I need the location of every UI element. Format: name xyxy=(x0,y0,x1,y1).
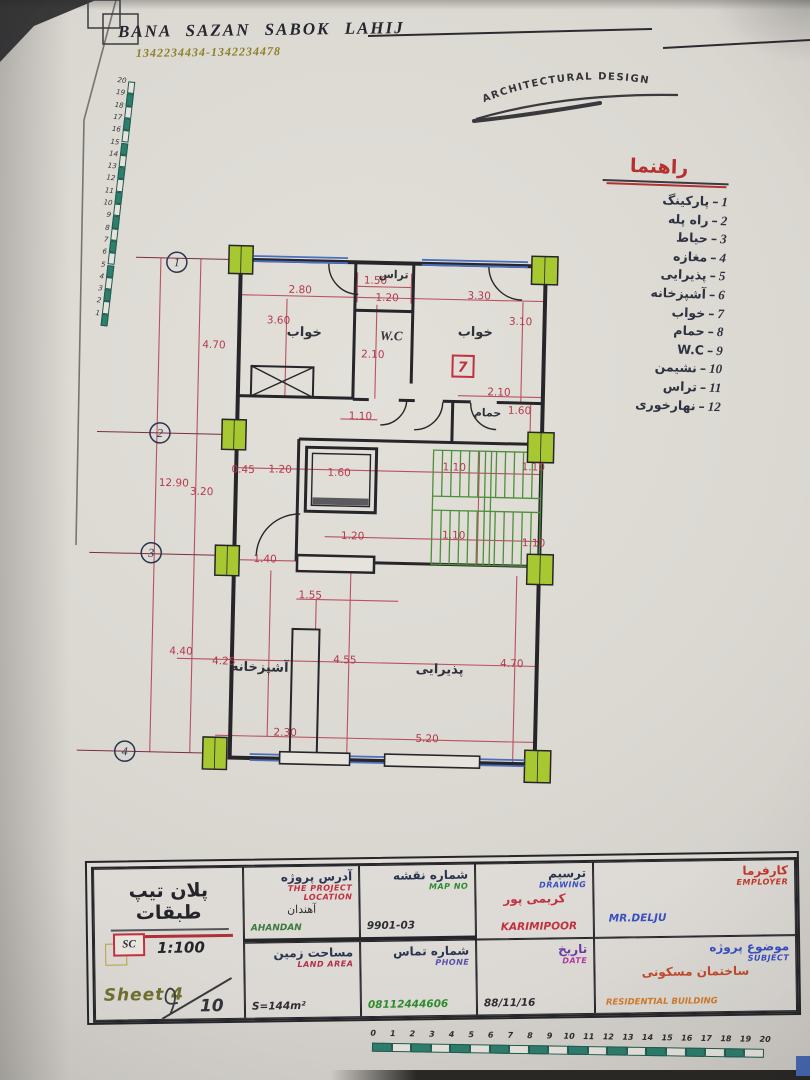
room-label: پذیرایی xyxy=(416,662,464,678)
legend-item-number: 5 xyxy=(719,268,726,284)
plan-type-title: پلان تیپ طبقات xyxy=(100,879,237,925)
blue-corner-mark xyxy=(796,1056,810,1076)
dimension-label: 1.20 xyxy=(268,463,292,476)
dimension-label: 2.10 xyxy=(487,386,511,399)
ruler-segment xyxy=(685,1048,705,1057)
legend-item-label: راه پله xyxy=(668,211,709,227)
title-block: پلان تیپ طبقات SC 1:100 Sheet 4 10 xyxy=(85,851,801,1025)
table-bottom-edge xyxy=(330,1070,810,1080)
dimension-label: 1.60 xyxy=(508,405,532,418)
ruler-segment xyxy=(646,1047,666,1056)
room-label: حمام xyxy=(474,406,502,420)
dimension-label: 4.70 xyxy=(500,658,524,671)
legend-item-number: 12 xyxy=(708,398,722,414)
ruler-segment xyxy=(450,1044,470,1053)
ruler-number: 12 xyxy=(99,173,116,183)
ruler-number: 9 xyxy=(542,1031,556,1040)
scale-value: 1:100 xyxy=(157,938,205,957)
legend-item-label: خواب xyxy=(671,304,705,320)
legend-item-label: آشپزخانه xyxy=(650,285,706,302)
dimension-label: 3.20 xyxy=(190,486,214,499)
ruler-number: 13 xyxy=(621,1033,635,1042)
cell-employer: کارفرما EMPLOYER MR.DELJU xyxy=(593,859,796,938)
grid-bubble-number: 4 xyxy=(122,744,128,758)
legend-item-number: 6 xyxy=(718,287,725,303)
ruler-number: 10 xyxy=(96,197,113,207)
legend-item-number: 3 xyxy=(720,231,727,247)
ruler-number: 16 xyxy=(104,124,121,134)
legend-item-number: 4 xyxy=(719,250,726,266)
legend-item-number: 9 xyxy=(716,343,723,359)
ruler-number: 20 xyxy=(110,75,127,85)
company-phones: 1342234434-1342234478 xyxy=(136,44,281,61)
ruler-segment xyxy=(127,81,135,94)
ruler-segment xyxy=(607,1046,627,1055)
dimension-label: 5.20 xyxy=(415,733,439,746)
grid-bubble-number: 1 xyxy=(174,255,180,269)
ruler-segment xyxy=(529,1045,549,1054)
cell-subject: موضوع پروژه SUBJECT ساختمان مسکونی RESID… xyxy=(594,935,797,1014)
legend-title: راهنما xyxy=(597,154,730,181)
bottom-scale-ruler: 01234567891011121314151617181920 xyxy=(372,1029,796,1066)
ruler-segment xyxy=(627,1047,647,1056)
photographed-blueprint-sheet: BANA SAZAN SABOK LAHIJ 1342234434-134223… xyxy=(0,0,810,1080)
legend-item-label: پذیرایی xyxy=(660,266,707,283)
dimension-label: 3.10 xyxy=(509,316,533,329)
ruler-number: 20 xyxy=(758,1035,772,1044)
ruler-segment xyxy=(744,1049,764,1058)
ruler-segment xyxy=(489,1045,509,1054)
ruler-segment xyxy=(705,1048,725,1057)
dimension-label: 1.10 xyxy=(442,461,466,474)
cell-map-no: شماره نقشه MAP NO 9901-03 xyxy=(359,864,476,942)
ruler-segment xyxy=(509,1045,529,1054)
legend-item-label: حمام xyxy=(673,323,705,339)
architectural-design-logo: ARCHITECTURAL DESIGN xyxy=(470,55,695,130)
ruler-segment xyxy=(587,1046,607,1055)
ruler-number: 3 xyxy=(425,1030,439,1039)
ruler-segment xyxy=(391,1043,411,1052)
ruler-number: 4 xyxy=(445,1030,459,1039)
ruler-segment xyxy=(119,155,127,168)
dimension-label: 1.10 xyxy=(349,410,373,423)
dimension-label: 2.10 xyxy=(361,348,385,361)
ruler-segment xyxy=(470,1044,490,1053)
legend-item-label: نشیمن xyxy=(654,359,697,375)
ruler-number: 8 xyxy=(523,1031,537,1040)
legend-item-number: 2 xyxy=(721,213,728,229)
ruler-number: 17 xyxy=(699,1034,713,1043)
floor-plan-drawing: 7 1234 2.801.501.203.303.603.104.702.102… xyxy=(63,226,616,818)
svg-text:7: 7 xyxy=(457,360,467,376)
ruler-segment xyxy=(116,179,124,192)
ruler-segment xyxy=(548,1045,568,1054)
room-label: W.C xyxy=(380,328,403,344)
cell-project-location: آدرس پروژه THE PROJECT LOCATION آهندان A… xyxy=(243,865,360,943)
grid-bubble-number: 3 xyxy=(147,546,154,560)
legend-item-number: 1 xyxy=(721,194,728,210)
ruler-number: 2 xyxy=(405,1029,419,1038)
dimension-label: 2.30 xyxy=(273,727,297,740)
ruler-number: 5 xyxy=(464,1030,478,1039)
cell-phone: شماره تماس PHONE 08112444606 xyxy=(360,940,477,1018)
ruler-number: 19 xyxy=(738,1034,752,1043)
legend-item-label: نهارخوری xyxy=(635,396,696,413)
ruler-segment xyxy=(725,1048,745,1057)
ruler-number: 12 xyxy=(601,1032,615,1041)
cell-drawing: ترسیم DRAWING کریمی پور KARIMIPOOR xyxy=(475,862,594,940)
ruler-number: 17 xyxy=(106,112,123,122)
room-number-tag: 7 xyxy=(452,356,473,377)
dimension-label: 4.70 xyxy=(202,339,226,352)
dimension-label: 4.40 xyxy=(169,645,193,658)
ruler-segment xyxy=(117,167,125,180)
ruler-number: 0 xyxy=(366,1029,380,1038)
dimension-label: 4.55 xyxy=(333,654,357,667)
sheet-total: 10 xyxy=(200,996,224,1016)
room-label: تراس xyxy=(379,268,409,282)
dimension-label: 1.20 xyxy=(375,292,399,305)
dimension-label: 2.80 xyxy=(288,284,312,297)
dimension-label: 1.40 xyxy=(253,553,277,566)
legend-item-number: 8 xyxy=(717,324,724,340)
grid-bubble-number: 2 xyxy=(157,426,163,440)
legend-item-label: مغازه xyxy=(673,248,708,264)
dimension-label: 1.10 xyxy=(522,537,546,550)
sc-stamp-box: SC xyxy=(113,933,145,956)
ruler-segment xyxy=(121,130,129,143)
legend-item-number: 7 xyxy=(717,306,724,322)
ruler-segment xyxy=(126,93,134,106)
dimension-label: 1.10 xyxy=(521,461,545,474)
ruler-segment xyxy=(114,191,122,204)
ruler-number: 18 xyxy=(719,1034,733,1043)
ruler-number: 16 xyxy=(680,1034,694,1043)
grid-leader-lines xyxy=(77,256,238,753)
ruler-number: 10 xyxy=(562,1032,576,1041)
room-label: خواب xyxy=(287,325,322,341)
ruler-number: 11 xyxy=(582,1032,596,1041)
dimension-label: 1.10 xyxy=(442,529,466,542)
ruler-number: 6 xyxy=(484,1030,498,1039)
legend-item-label: W.C xyxy=(677,341,704,357)
cell-land-area: مساحت زمین LAND AREA S=144m² xyxy=(244,941,361,1019)
scale-stamp: SC xyxy=(105,931,149,966)
dimension-label: 0.45 xyxy=(231,464,255,477)
ruler-number: 13 xyxy=(100,161,117,171)
ruler-number: 19 xyxy=(109,87,126,97)
ruler-number: 15 xyxy=(660,1033,674,1042)
ruler-number: 18 xyxy=(107,100,124,110)
sheet-number: Sheet 4 10 xyxy=(104,976,241,1021)
dimension-label: 1.55 xyxy=(298,589,322,602)
ruler-number: 1 xyxy=(386,1029,400,1038)
legend-item-number: 11 xyxy=(709,380,722,396)
plan-title-panel: پلان تیپ طبقات SC 1:100 Sheet 4 10 xyxy=(93,867,245,1021)
ruler-segment xyxy=(568,1046,588,1055)
room-label: خواب xyxy=(458,325,493,341)
ruler-segment xyxy=(666,1047,686,1056)
legend-item-label: پارکینگ xyxy=(662,192,709,209)
legend-item-number: 10 xyxy=(709,361,723,377)
legend-item-label: تراس xyxy=(663,378,698,394)
dimension-label: 1.20 xyxy=(341,530,365,543)
cell-date: تاریخ DATE 88/11/16 xyxy=(476,938,595,1016)
ruler-number: 9 xyxy=(95,210,112,220)
ruler-number: 14 xyxy=(102,149,119,159)
ruler-number: 7 xyxy=(503,1031,517,1040)
ruler-number: 14 xyxy=(640,1033,654,1042)
dimension-label: 3.30 xyxy=(467,290,491,303)
ruler-segment xyxy=(120,142,128,155)
header-rule-lines xyxy=(360,20,810,60)
room-label: آشپزخانه xyxy=(231,658,290,676)
ruler-number: 15 xyxy=(103,136,120,146)
dimension-label: 12.90 xyxy=(159,477,189,490)
ruler-segment xyxy=(372,1043,392,1052)
ruler-segment xyxy=(431,1044,451,1053)
ruler-segment xyxy=(411,1043,431,1052)
ruler-segment xyxy=(124,106,132,119)
legend-item-label: حیاط xyxy=(676,230,708,246)
ruler-number: 11 xyxy=(97,185,114,195)
ruler-segment xyxy=(113,203,121,216)
dimension-label: 1.60 xyxy=(327,467,351,480)
dimension-labels: 2.801.501.203.303.603.104.702.102.101.60… xyxy=(153,270,551,748)
ruler-segment xyxy=(123,118,131,131)
entry-threshold xyxy=(297,555,374,573)
